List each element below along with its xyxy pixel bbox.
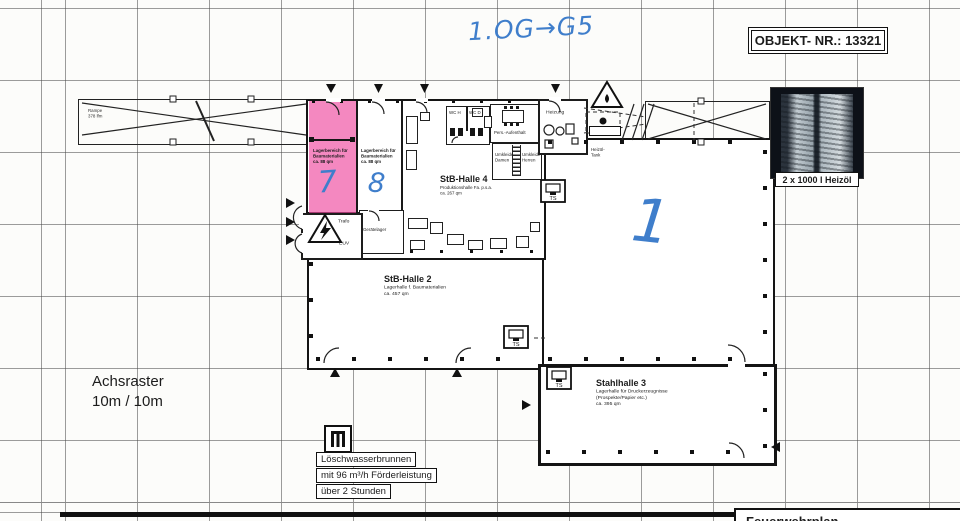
wc-d-label: WC D [469,110,481,116]
machine-rect [490,238,507,249]
column-strip [763,150,767,356]
chair-icon [504,123,507,126]
column-square [309,137,314,142]
well-text-line1: Löschwasserbrunnen [316,452,416,467]
door-gap [326,98,341,102]
halle3-details: Lagerhalle für Druckerzeugnisse (Prospek… [596,389,668,408]
column-strip [316,357,530,361]
storage-area-7-label: Lagerbereich für Baumaterialien ca. 88 q… [313,148,348,165]
machine-rect [468,240,483,250]
title-block-box: Feuerwehrplan [734,508,960,521]
trafo-label: Trafo [338,219,349,225]
column-strip [548,357,762,361]
wall-between-7-8 [356,101,358,213]
well-icon [325,426,351,452]
well-text-line2: mit 96 m³/h Förderleistung [316,468,437,483]
door-gap [455,363,471,367]
photo-grain [781,94,853,173]
chair-icon [516,123,519,126]
machine-rect [410,240,425,250]
machine-rect [516,236,529,248]
handwritten-number-1: 1 [629,190,673,254]
door-gap [299,205,303,229]
scanned-site-plan-page: Rampe 378 lfm WC H WC D Pers.-Aufenthalt… [0,0,960,521]
heizoel-tank-dot [600,118,607,125]
halle3-name: Stahlhalle 3 [596,378,646,389]
door-gap [368,209,379,212]
area7-divider-wall [311,139,354,141]
machine-rect [408,218,428,229]
heizung-label: Heizung [546,110,564,116]
objekt-nr-text: OBJEKT- NR.: 13321 [751,30,885,51]
axis-raster-label: Achsraster 10m / 10m [92,372,164,413]
fire-warning-triangle-icon [592,82,622,107]
machine-rect [406,150,417,170]
geraetelager-label: Gerätelager [363,227,386,233]
ramp-wing-west [78,99,310,145]
door-gap [416,98,428,102]
machine-rect [447,234,464,245]
column-strip [548,140,762,144]
halle2-details: Lagerhalle f. Baumaterialien ca. 457 qm [384,285,446,297]
door-gap [299,233,303,253]
wc-h-label: WC H [449,110,461,116]
heizoel-photo [770,87,864,179]
wc-fixture [478,128,483,136]
ramp-label: Rampe 378 lfm [88,108,102,119]
heizung-room [538,99,588,155]
door-gap [322,363,338,367]
chair-icon [510,123,513,126]
column-strip [546,450,762,454]
handwritten-number-7: 7 [317,167,338,198]
trafo-room [301,213,363,260]
objekt-nr-box: OBJEKT- NR.: 13321 [748,27,888,54]
chair-icon [504,106,507,109]
photo-caption: 2 x 1000 l Heizöl [775,172,859,187]
halle4-name: StB-Halle 4 [440,174,488,185]
column-square [350,137,355,142]
table-icon [502,110,524,123]
wc-fixture [450,128,455,136]
column-strip [309,262,313,356]
halle2-name: StB-Halle 2 [384,274,432,285]
wc-divider-wall [466,107,468,131]
chair-icon [510,106,513,109]
chair-icon [516,106,519,109]
column-strip [763,372,767,450]
handwritten-note: 1.OG→G5 [467,13,594,45]
locker-strip [512,145,521,176]
umkleide-herren-label: Umkleide Herren [522,152,540,163]
euv-label: EUV [339,241,349,247]
halle4-details: Produktionshalle Fa. p.s.a. ca. 267 qm [440,185,492,196]
wc-fixture [470,128,475,136]
well-text-line3: über 2 Stunden [316,484,391,499]
heizoel-tank-labelbox: Heizöl-Tank [589,126,621,136]
storage-area-8-label: Lagerbereich für Baumaterialien ca. 88 q… [361,148,396,165]
machine-rect [430,222,443,234]
stb-halle-2-outline [307,254,544,370]
wc-fixture [458,128,463,136]
bottom-frame-thin-line [0,502,960,503]
machine-rect [420,112,430,121]
umkleide-damen-label: Umkleide Damen [495,152,513,163]
door-gap [728,457,744,462]
column-strip [410,250,536,253]
title-block-top-edge [60,512,736,517]
machine-rect [484,116,492,128]
handwritten-number-8: 8 [367,169,386,197]
door-gap [728,363,745,367]
title-block-partial-text: Feuerwehrplan [746,514,960,521]
heizoel-tank-label: Heizöl-Tank [591,147,607,158]
door-gap [372,98,385,102]
machine-rect [406,116,418,144]
aufenthalt-label: Pers.-Aufenthalt [494,130,526,136]
machine-rect [530,222,540,232]
door-gap [549,97,561,101]
